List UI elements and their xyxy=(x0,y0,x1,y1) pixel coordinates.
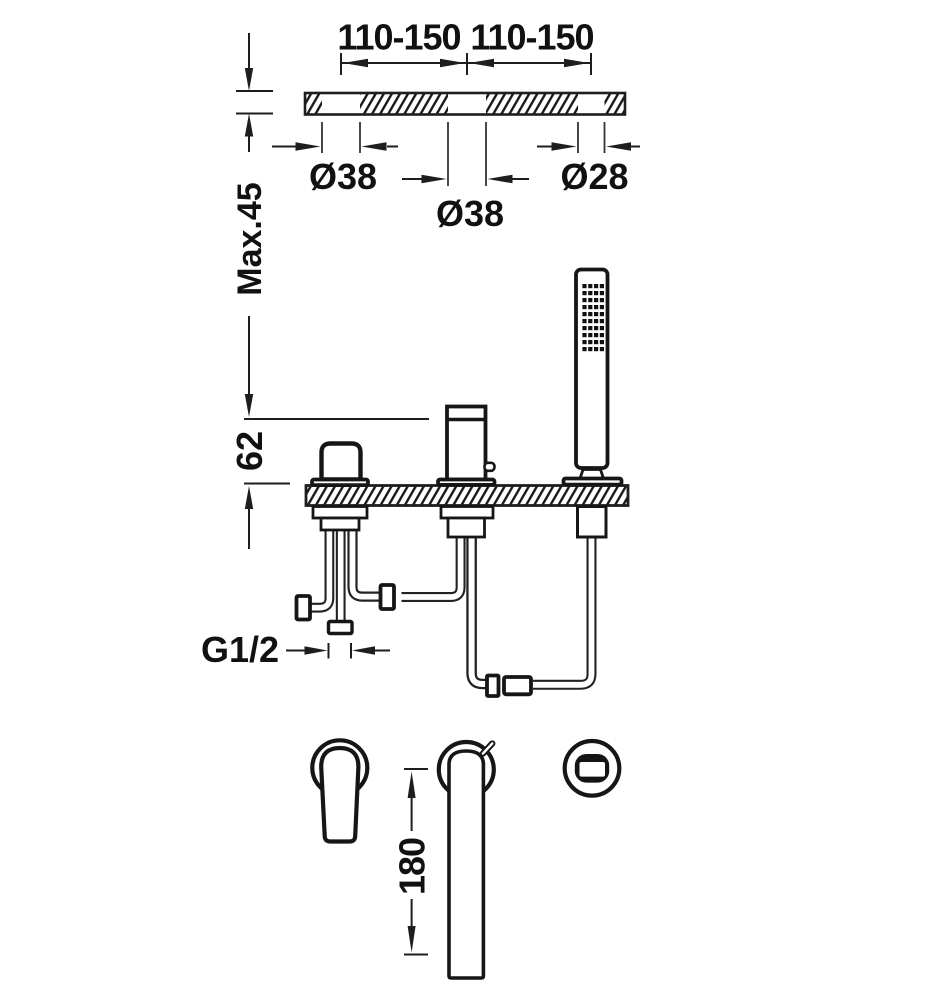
svg-text:Ø38: Ø38 xyxy=(309,156,377,197)
svg-text:G1/2: G1/2 xyxy=(201,629,279,670)
svg-text:62: 62 xyxy=(229,431,270,471)
svg-text:110-150: 110-150 xyxy=(337,17,460,58)
svg-text:110-150: 110-150 xyxy=(470,17,593,58)
svg-text:180: 180 xyxy=(392,838,433,895)
svg-text:Ø38: Ø38 xyxy=(436,193,504,234)
svg-text:Ø28: Ø28 xyxy=(560,156,628,197)
svg-text:Max.45: Max.45 xyxy=(231,182,269,295)
